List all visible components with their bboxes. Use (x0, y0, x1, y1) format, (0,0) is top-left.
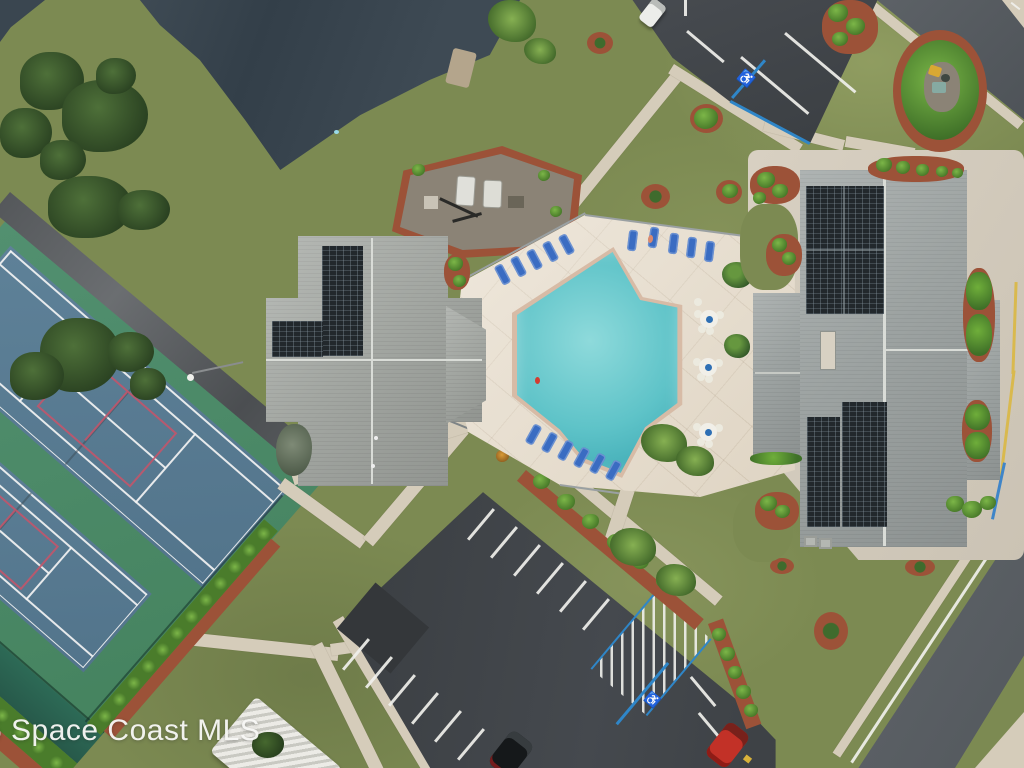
tree (118, 190, 170, 230)
mls-watermark: 5 Space Coast MLS (0, 714, 260, 748)
hedge-bush (965, 404, 990, 430)
solar-panel-array (322, 246, 363, 356)
tennis-court-area (0, 210, 324, 768)
roof-ridge (371, 238, 373, 484)
topiary-shrub (724, 334, 750, 358)
equipment-box (508, 196, 524, 208)
patio-table (700, 310, 718, 328)
pond-corner-inlet (0, 0, 60, 42)
ac-unit (804, 536, 817, 547)
ac-unit (819, 538, 832, 549)
hedge-bush (582, 514, 599, 529)
hedge-bush (557, 494, 575, 510)
roof-vent (371, 464, 375, 468)
hedge-bush (965, 432, 990, 459)
grill (941, 74, 950, 82)
solar-array-divider (806, 249, 884, 251)
patio-table (699, 358, 717, 376)
swimmer (535, 377, 540, 384)
hedge-row (750, 452, 802, 465)
lamp-post-light (187, 374, 194, 381)
equipment-pad (424, 196, 438, 209)
tree (40, 140, 86, 180)
roof-vent (374, 436, 378, 440)
solar-panel-array (842, 402, 887, 527)
solar-panel-array (807, 417, 840, 527)
equipment-tank (455, 175, 476, 206)
water-glint (334, 130, 339, 134)
residence-roof-wing (753, 293, 800, 457)
tree-ring (641, 184, 670, 209)
bench-teal (932, 82, 946, 93)
roof-ridge (755, 372, 800, 374)
hedge-bush (966, 272, 992, 310)
patio-table (699, 423, 717, 441)
equipment-tank (483, 180, 503, 209)
parking-stripe (684, 0, 687, 16)
skylight (820, 331, 836, 370)
palm-tree (524, 38, 556, 64)
tree-ring (587, 32, 613, 54)
hedge-bush (966, 314, 992, 356)
tree-ring (905, 558, 935, 576)
aerial-photo: ♿ ♿ (0, 0, 1024, 768)
roof-ridge (266, 359, 482, 361)
shrub-bed-oval (814, 612, 848, 650)
solar-panel-array (272, 321, 323, 357)
patio-chair (694, 298, 702, 306)
